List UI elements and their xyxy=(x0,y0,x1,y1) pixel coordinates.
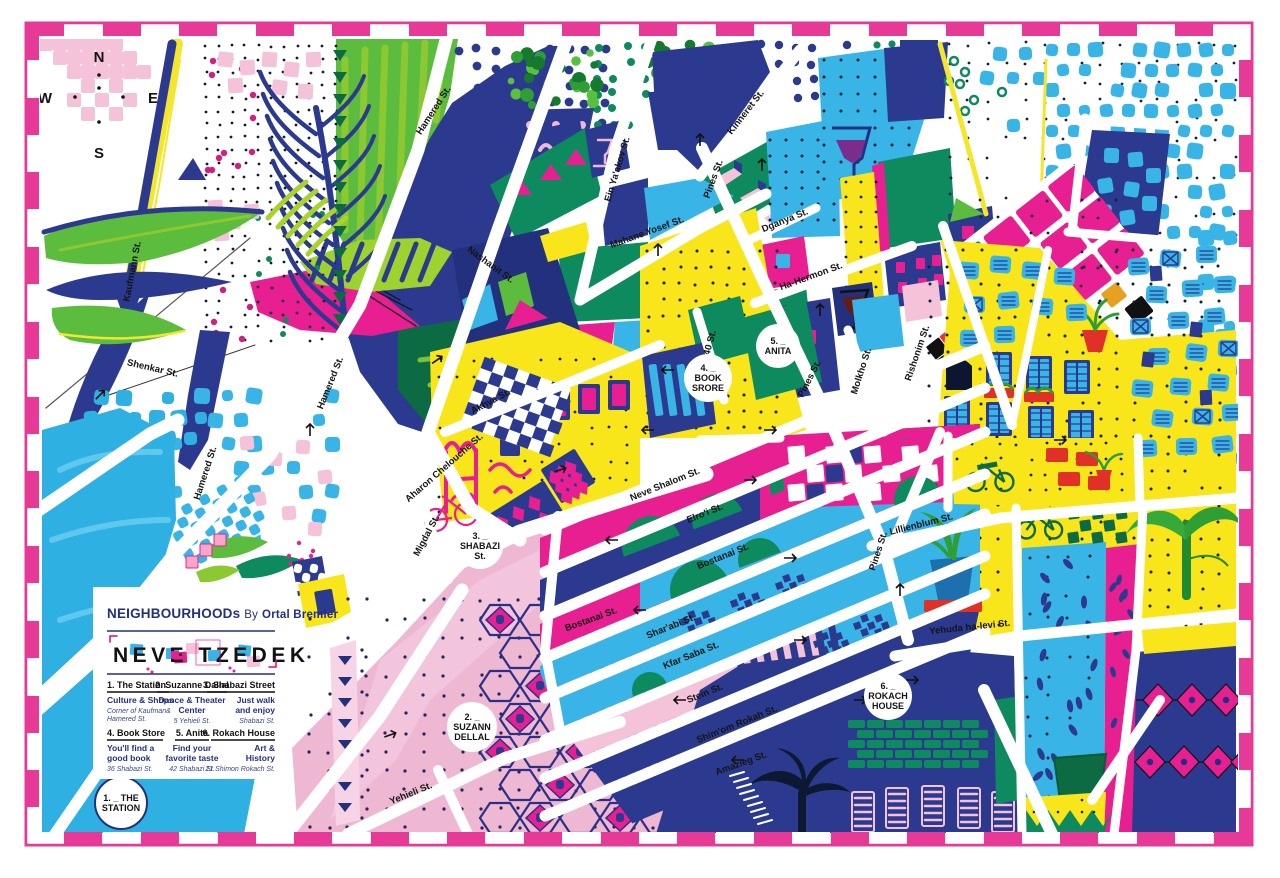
svg-text:Art &: Art & xyxy=(254,743,275,753)
svg-text:3. _: 3. _ xyxy=(472,531,488,541)
svg-text:5. _: 5. _ xyxy=(770,336,786,346)
svg-text:5 Yehieli St.: 5 Yehieli St. xyxy=(174,718,211,725)
svg-text:1. _ THE: 1. _ THE xyxy=(103,793,139,803)
svg-text:BOOK: BOOK xyxy=(695,373,723,383)
svg-text:ANITA: ANITA xyxy=(765,346,792,356)
svg-text:6. Rokach House: 6. Rokach House xyxy=(202,728,275,738)
svg-text:SUZANN: SUZANN xyxy=(453,722,491,732)
svg-text:good book: good book xyxy=(107,753,151,763)
svg-text:Hamered St.: Hamered St. xyxy=(107,716,146,723)
svg-text:and enjoy: and enjoy xyxy=(235,705,275,715)
svg-text:2. _: 2. _ xyxy=(464,712,480,722)
svg-text:Find your: Find your xyxy=(173,743,212,753)
svg-text:Dance & Theater: Dance & Theater xyxy=(158,695,226,705)
svg-text:favorite taste: favorite taste xyxy=(166,753,219,763)
svg-text:NEVE TZEDEK: NEVE TZEDEK xyxy=(113,644,310,667)
svg-text:4. Book Store: 4. Book Store xyxy=(107,728,165,738)
svg-text:STATION: STATION xyxy=(102,803,140,813)
svg-text:E: E xyxy=(148,90,158,107)
svg-text:3. Shabazi Street: 3. Shabazi Street xyxy=(203,680,275,690)
svg-text:Shabazi St.: Shabazi St. xyxy=(239,718,275,725)
svg-text:6. _: 6. _ xyxy=(880,681,896,691)
svg-text:You'll find a: You'll find a xyxy=(107,743,154,753)
svg-text:NEIGHBOURHOODs By Ortal Bremle: NEIGHBOURHOODs By Ortal Bremler xyxy=(107,606,338,621)
svg-text:SHABAZI: SHABAZI xyxy=(460,541,500,551)
svg-text:DELLAL: DELLAL xyxy=(454,732,490,742)
svg-text:4. _: 4. _ xyxy=(700,363,716,373)
svg-text:S: S xyxy=(94,145,104,162)
svg-text:St.: St. xyxy=(474,551,486,561)
svg-text:SRORE: SRORE xyxy=(692,383,724,393)
svg-text:N: N xyxy=(94,49,105,66)
svg-text:Corner of Kaufman&: Corner of Kaufman& xyxy=(107,708,171,715)
svg-text:ROKACH: ROKACH xyxy=(868,691,908,701)
svg-text:Just walk: Just walk xyxy=(237,695,276,705)
svg-text:21 Shimon Rokach St.: 21 Shimon Rokach St. xyxy=(204,766,275,773)
svg-text:HOUSE: HOUSE xyxy=(872,701,904,711)
svg-text:36 Shabazi St.: 36 Shabazi St. xyxy=(107,766,153,773)
svg-text:W: W xyxy=(38,90,53,107)
svg-text:Center: Center xyxy=(179,705,207,715)
svg-text:History: History xyxy=(246,753,276,763)
